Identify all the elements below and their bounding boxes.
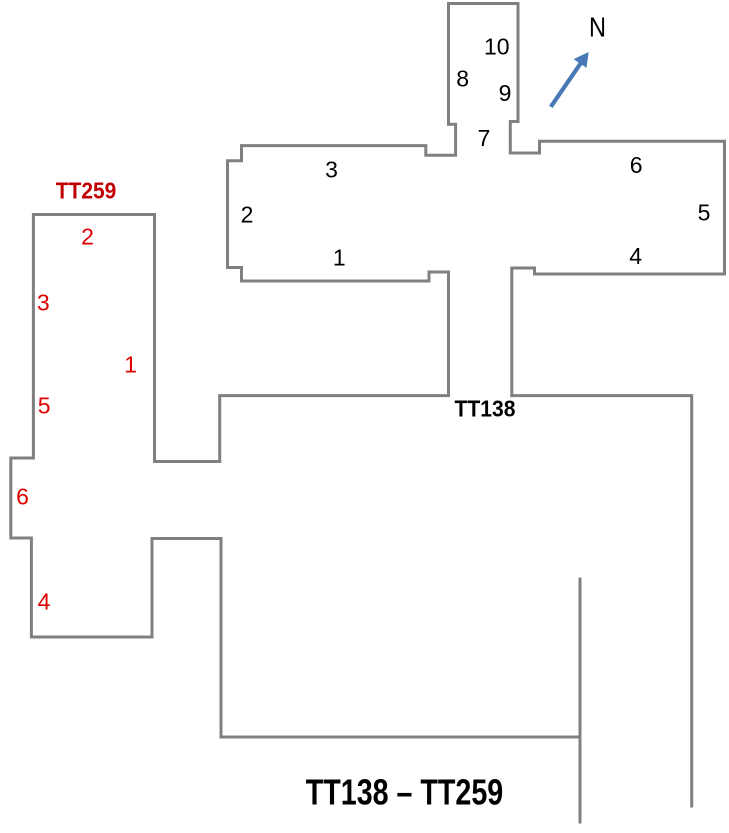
svg-text:10: 10 — [484, 34, 510, 60]
svg-text:7: 7 — [478, 125, 491, 151]
svg-text:1: 1 — [333, 245, 346, 271]
svg-text:1: 1 — [124, 352, 137, 378]
svg-text:5: 5 — [698, 199, 711, 225]
svg-text:2: 2 — [81, 224, 94, 250]
svg-text:2: 2 — [241, 201, 254, 227]
svg-text:4: 4 — [629, 243, 642, 269]
svg-text:TT259: TT259 — [56, 177, 117, 203]
svg-text:6: 6 — [630, 152, 643, 178]
svg-text:TT138 – TT259: TT138 – TT259 — [306, 772, 504, 813]
svg-text:4: 4 — [38, 589, 51, 615]
svg-text:3: 3 — [325, 156, 338, 182]
svg-text:TT138: TT138 — [455, 396, 516, 422]
svg-text:5: 5 — [38, 392, 51, 418]
svg-text:3: 3 — [37, 290, 50, 316]
svg-text:6: 6 — [16, 483, 29, 509]
svg-text:8: 8 — [456, 66, 469, 92]
svg-text:9: 9 — [499, 80, 512, 106]
svg-text:N: N — [589, 12, 606, 43]
